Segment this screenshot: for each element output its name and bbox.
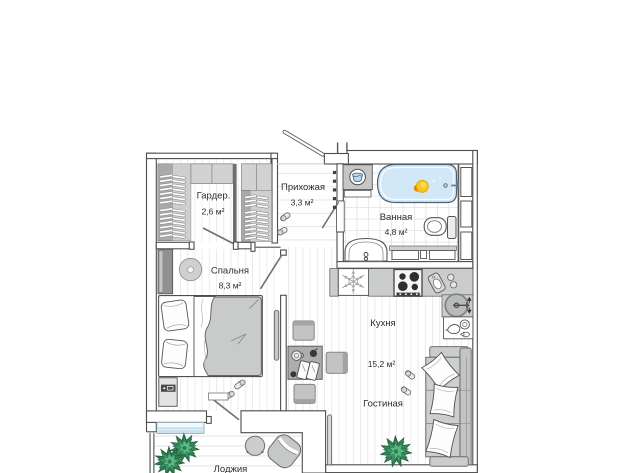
svg-text:Кухня: Кухня (370, 318, 395, 329)
svg-text:4,8 м²: 4,8 м² (385, 227, 408, 237)
svg-text:3,3 м²: 3,3 м² (291, 198, 314, 208)
svg-text:8,3 м²: 8,3 м² (219, 281, 242, 291)
svg-text:Спальня: Спальня (211, 266, 249, 277)
svg-text:Гардер.: Гардер. (197, 191, 231, 202)
svg-text:2,6 м²: 2,6 м² (202, 207, 225, 217)
svg-text:Гостиная: Гостиная (363, 398, 403, 409)
svg-text:Ванная: Ванная (380, 212, 413, 223)
svg-text:Прихожая: Прихожая (281, 182, 325, 193)
svg-text:15,2 м²: 15,2 м² (368, 359, 396, 369)
svg-text:Лоджия: Лоджия (214, 464, 248, 473)
